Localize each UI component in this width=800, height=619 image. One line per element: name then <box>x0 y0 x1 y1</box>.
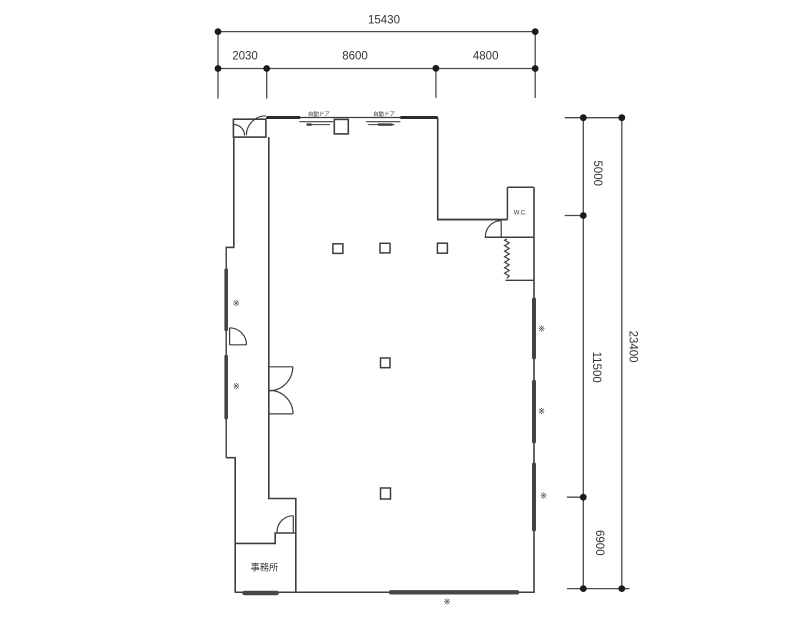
svg-text:15430: 15430 <box>368 15 400 27</box>
svg-text:自動ドア: 自動ドア <box>373 110 396 118</box>
svg-text:※: ※ <box>233 298 240 308</box>
svg-text:23400: 23400 <box>626 331 638 363</box>
svg-text:※: ※ <box>538 324 545 334</box>
svg-text:事務所: 事務所 <box>250 562 278 573</box>
svg-text:W.C.: W.C. <box>514 211 527 217</box>
svg-text:自動ドア: 自動ドア <box>308 110 331 118</box>
svg-text:※: ※ <box>443 597 450 607</box>
svg-text:5000: 5000 <box>591 160 603 186</box>
svg-text:6900: 6900 <box>593 530 605 556</box>
svg-text:※: ※ <box>233 381 240 391</box>
svg-text:※: ※ <box>538 406 545 416</box>
svg-text:2030: 2030 <box>232 51 258 63</box>
svg-text:11500: 11500 <box>590 352 602 383</box>
svg-text:8600: 8600 <box>342 51 368 63</box>
svg-text:※: ※ <box>540 491 547 501</box>
svg-text:4800: 4800 <box>473 51 499 63</box>
